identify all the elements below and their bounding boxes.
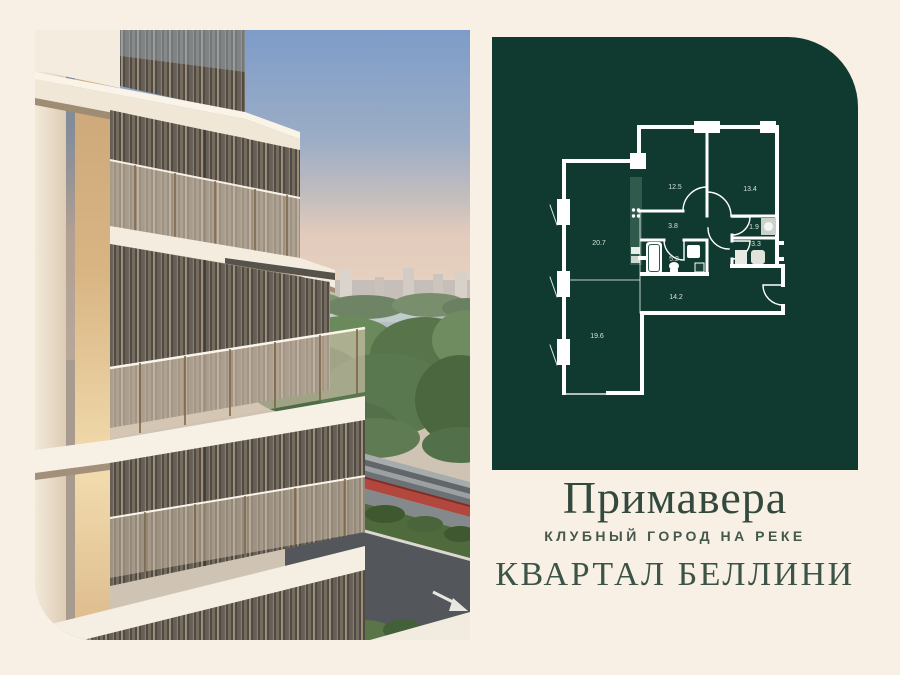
building-photo	[35, 30, 470, 640]
window-icon	[760, 121, 776, 133]
area-label: 14.2	[669, 294, 683, 301]
area-label: 12.5	[668, 184, 682, 191]
door-arcs	[664, 187, 783, 305]
windows	[557, 121, 776, 365]
brand-district: КВАРТАЛ БЕЛЛИНИ	[492, 556, 858, 594]
window-icon	[557, 271, 570, 297]
area-label: 20.7	[592, 240, 606, 247]
floor-plan-panel: 20.7 19.6 12.5 13.4 3.8 1.9 3.3 5.2 14.2	[492, 37, 858, 470]
window-icon	[557, 339, 570, 365]
window-icon	[557, 199, 570, 225]
kitchen-sink-icon	[631, 247, 640, 254]
brand-title: Примавера	[492, 474, 858, 522]
white-pillar	[35, 30, 66, 640]
washbasin-icon	[687, 245, 700, 258]
door-arc	[683, 187, 707, 211]
laundry-fixtures	[761, 218, 776, 235]
door-arc	[707, 192, 731, 216]
sink-icon	[735, 250, 747, 264]
area-label: 3.8	[668, 223, 678, 230]
shaft-block	[630, 153, 646, 169]
area-label: 3.3	[751, 241, 761, 248]
brand-subtitle: КЛУБНЫЙ ГОРОД НА РЕКЕ	[492, 528, 858, 544]
area-label: 13.4	[743, 186, 757, 193]
duct-block	[695, 263, 704, 272]
building-photo-art	[35, 30, 470, 640]
wc-fixtures	[735, 250, 765, 264]
area-label: 1.9	[749, 224, 759, 231]
window-icon	[694, 121, 720, 133]
door-arc	[708, 228, 729, 249]
gold-pillar	[75, 30, 110, 640]
brand-block: Примавера КЛУБНЫЙ ГОРОД НА РЕКЕ КВАРТАЛ …	[492, 474, 858, 594]
area-label: 19.6	[590, 333, 604, 340]
entrance-door-arc	[763, 285, 783, 305]
toilet-icon	[669, 262, 679, 270]
floor-plan: 20.7 19.6 12.5 13.4 3.8 1.9 3.3 5.2 14.2	[542, 113, 802, 410]
area-label: 5.2	[669, 256, 679, 263]
door-arc	[732, 217, 750, 235]
toilet-icon	[751, 250, 765, 264]
